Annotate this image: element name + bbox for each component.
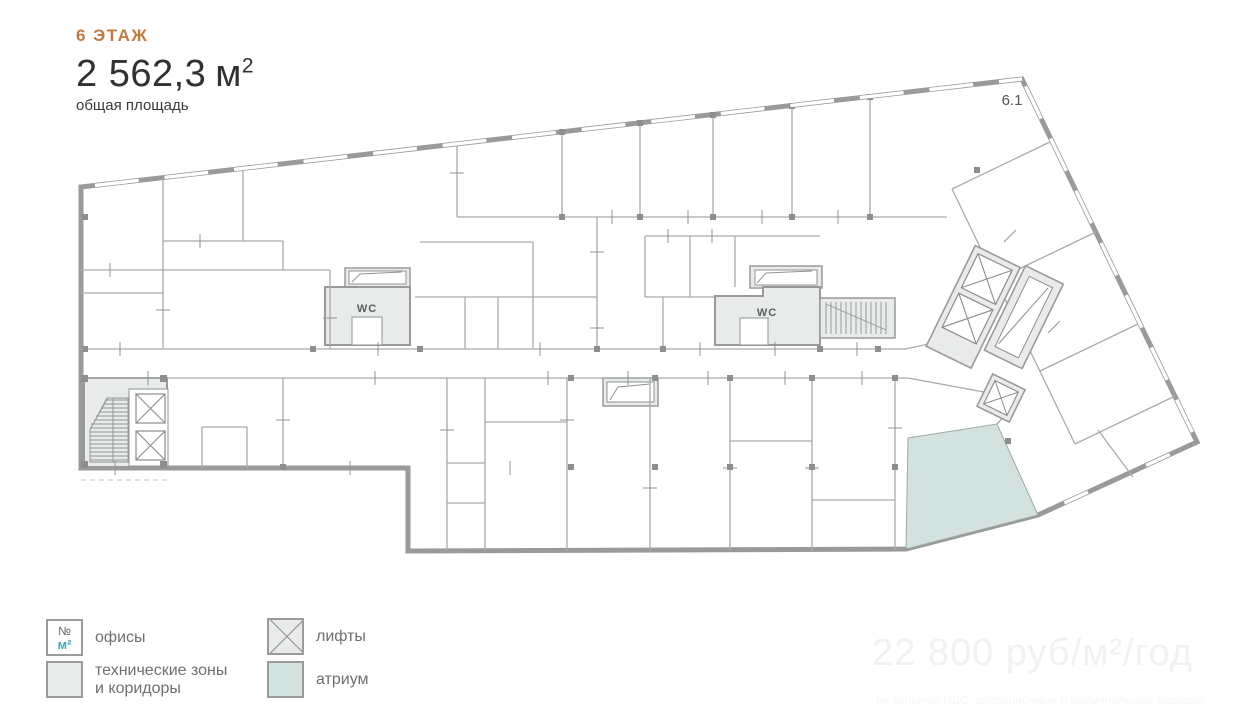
legend-item-offices: № м² офисы (46, 619, 146, 656)
page-root: 6 ЭТАЖ 2 562,3м2 общая площадь 22 800 ру… (0, 0, 1243, 721)
legend-item-atrium: атриум (267, 661, 369, 698)
offices-icon-number: № (58, 625, 71, 638)
offices-swatch-icon: № м² (46, 619, 83, 656)
wc-right-label: WC (757, 307, 777, 319)
legend-item-technical: технические зоны и коридоры (46, 661, 227, 698)
legend-label-lifts: лифты (316, 628, 366, 646)
unit-label: 6.1 (1002, 92, 1023, 109)
atrium-swatch-icon (267, 661, 304, 698)
legend-label-offices: офисы (95, 629, 146, 647)
legend-label-technical: технические зоны и коридоры (95, 662, 227, 698)
floor-plan: 6.1 WC WC (0, 0, 1243, 721)
lifts-swatch-icon (267, 618, 304, 655)
legend-label-atrium: атриум (316, 671, 369, 689)
technical-swatch-icon (46, 661, 83, 698)
wc-left-label: WC (357, 303, 377, 315)
offices-icon-m2: м² (58, 638, 72, 651)
legend-item-lifts: лифты (267, 618, 366, 655)
